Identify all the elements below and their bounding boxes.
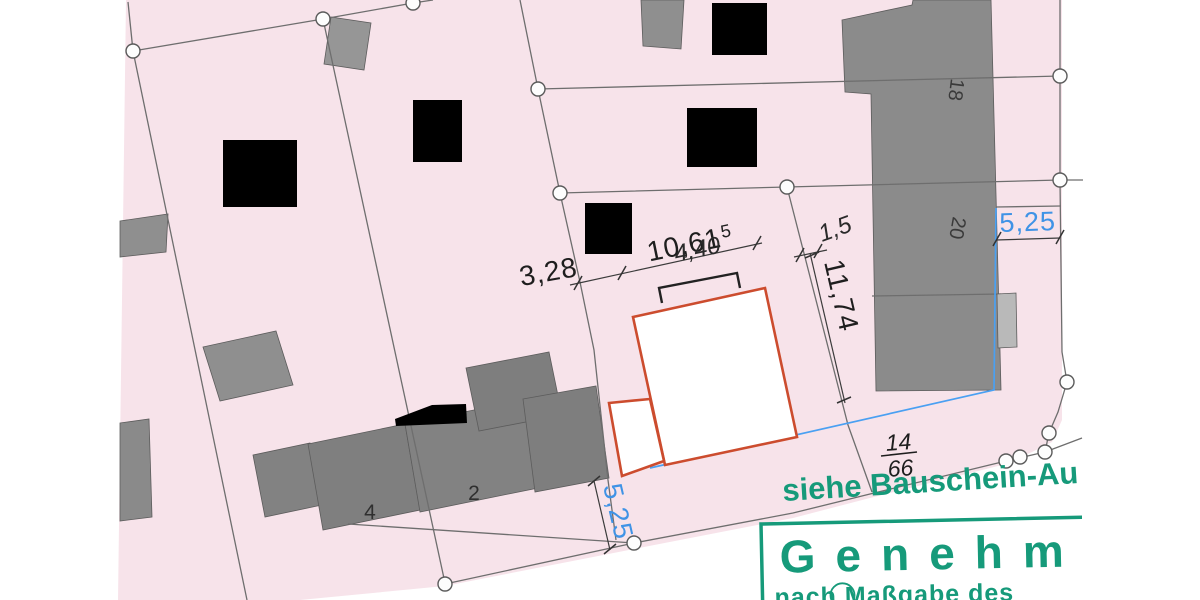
boundary-point-marker (553, 186, 567, 200)
redaction-box (223, 140, 297, 207)
building-small-topleft (324, 17, 371, 70)
house-number-2: 2 (468, 482, 480, 505)
parcel-number-numerator: 14 (885, 428, 912, 456)
dim-label-5-25-right: 5,25 (999, 206, 1057, 238)
building-small-topmid (641, 0, 684, 49)
boundary-point-marker (1042, 426, 1056, 440)
house-number-18: 18 (943, 77, 968, 102)
redaction-box (687, 108, 757, 167)
redaction-box (413, 100, 462, 162)
boundary-point-marker (627, 536, 641, 550)
redaction-box (585, 203, 632, 254)
house-number-4: 4 (364, 501, 376, 524)
stamp-title: Genehmi (779, 524, 1117, 583)
boundary-point-marker (780, 180, 794, 194)
building-row-east (523, 386, 609, 492)
boundary-point-marker (406, 0, 420, 10)
boundary-point-marker (531, 82, 545, 96)
house-number-20: 20 (944, 215, 970, 241)
scanned-site-plan: 3,28 10,61 5 4,40 1,5 11,74 5,25 5,25 14… (0, 0, 1200, 600)
building-clipped-left-upper (120, 214, 168, 257)
site-plan-svg: 3,28 10,61 5 4,40 1,5 11,74 5,25 5,25 14… (0, 0, 1200, 600)
boundary-point-marker (1060, 375, 1074, 389)
redaction-box (712, 3, 767, 55)
boundary-point-marker (438, 577, 452, 591)
building-20-annex (997, 293, 1017, 348)
boundary-point-marker (316, 12, 330, 26)
boundary-point-marker (1053, 173, 1067, 187)
boundary-point-marker (126, 44, 140, 58)
building-clipped-left-lower (120, 419, 152, 521)
boundary-point-marker (1053, 69, 1067, 83)
